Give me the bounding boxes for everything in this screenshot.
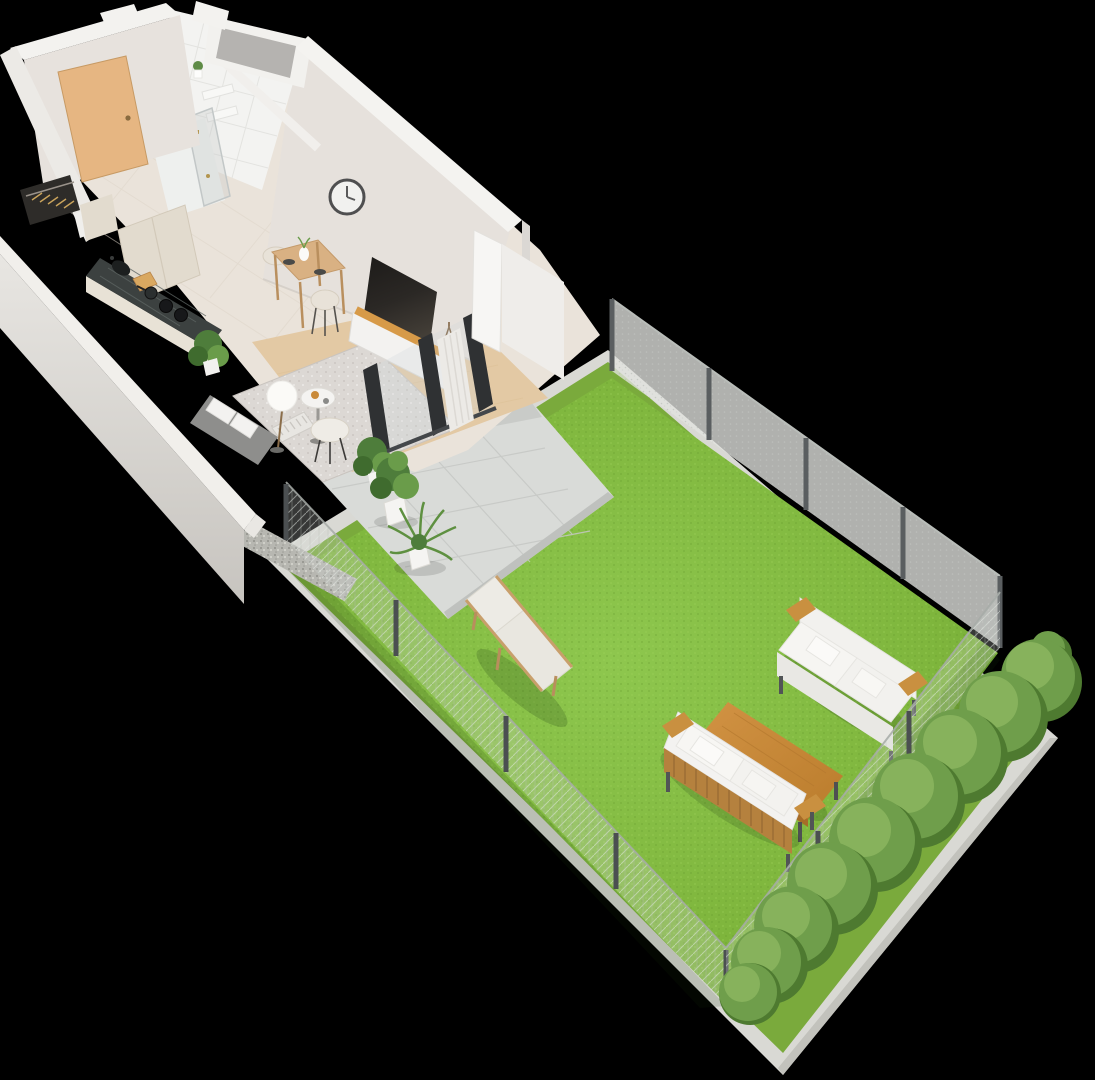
faucet [110, 256, 114, 260]
door-handle [125, 115, 130, 120]
table-plate-2 [314, 269, 326, 275]
hob-burner-1 [160, 300, 173, 313]
floorplan-render [0, 0, 1095, 1080]
bathroom-plant [193, 61, 203, 78]
table-plate-1 [283, 259, 295, 265]
hob-burner-2 [175, 309, 188, 322]
cooking-pot [145, 287, 157, 299]
shower-handle-gold [206, 174, 210, 178]
amber-cup [311, 391, 319, 399]
small-bowl [323, 398, 329, 404]
table-vase [299, 247, 309, 261]
facade-pillar [472, 230, 502, 352]
floorplan-stage [0, 0, 1095, 1080]
wardrobe [20, 175, 80, 225]
hedge-blob [719, 963, 781, 1025]
